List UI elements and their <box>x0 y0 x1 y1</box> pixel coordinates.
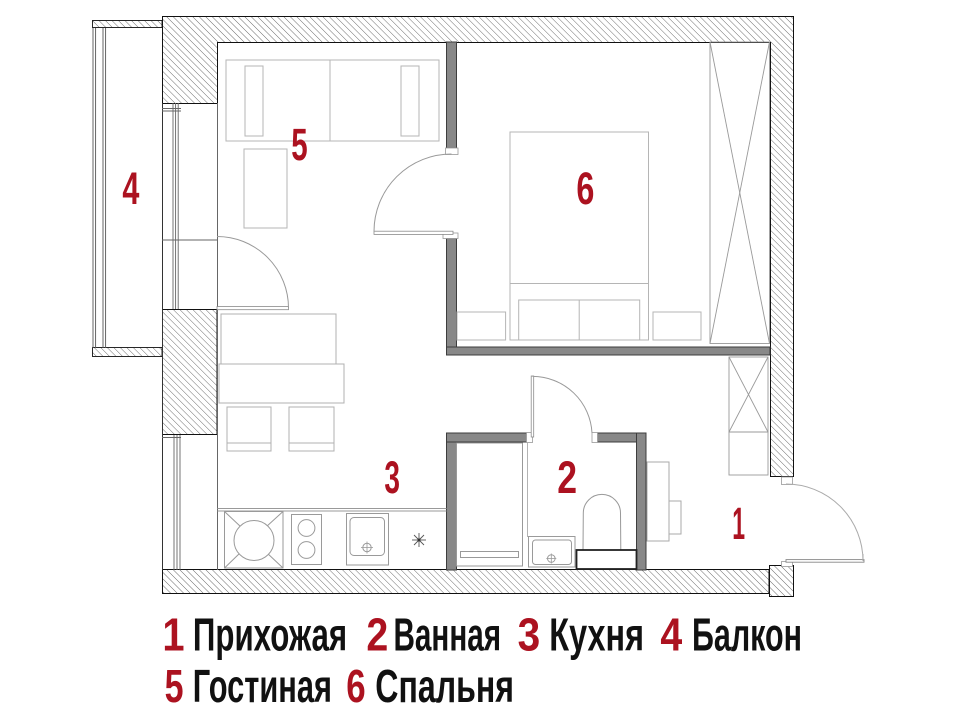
svg-text:Спальня: Спальня <box>375 660 514 712</box>
svg-text:6: 6 <box>576 163 594 214</box>
svg-text:2: 2 <box>557 452 577 503</box>
svg-text:6: 6 <box>346 660 365 712</box>
svg-text:1: 1 <box>732 498 745 549</box>
svg-text:4: 4 <box>660 609 682 661</box>
svg-text:5: 5 <box>165 660 184 712</box>
svg-text:3: 3 <box>384 452 400 503</box>
svg-text:2: 2 <box>366 609 388 661</box>
svg-text:Ванная: Ванная <box>394 609 502 661</box>
svg-text:Прихожая: Прихожая <box>193 609 347 661</box>
svg-text:Балкон: Балкон <box>692 609 802 661</box>
svg-text:4: 4 <box>122 163 139 214</box>
svg-text:Гостиная: Гостиная <box>193 660 332 712</box>
svg-text:1: 1 <box>162 609 184 661</box>
svg-text:5: 5 <box>291 119 307 170</box>
svg-text:Кухня: Кухня <box>549 609 644 661</box>
svg-text:3: 3 <box>518 609 541 661</box>
